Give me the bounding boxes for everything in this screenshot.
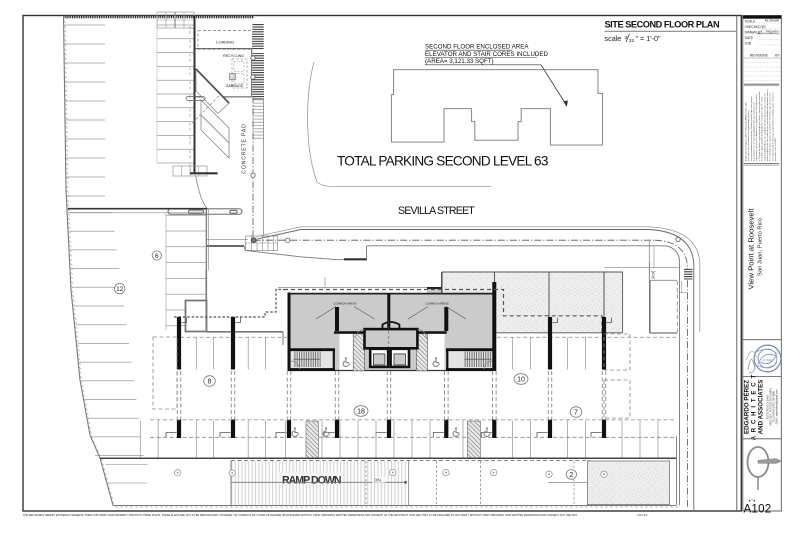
svg-text:prevision o por lo OGPe.: prevision o por lo OGPe.	[774, 137, 777, 161]
svg-text:10: 10	[517, 377, 525, 384]
svg-text:scale: scale	[605, 34, 622, 43]
svg-text:y Colegio de buena segun aprob: y Colegio de buena segun aprobada por pl…	[758, 91, 761, 161]
svg-text:la responsabilidad professiona: la responsabilidad professional. Tambien…	[750, 95, 753, 161]
svg-text:8: 8	[208, 379, 212, 386]
svg-text:EMAIL: eparchitects@gmail.com: EMAIL: eparchitects@gmail.com	[776, 390, 779, 425]
svg-text:responsabilidad delos con cual: responsabilidad delos con cualquier deci…	[763, 93, 766, 161]
svg-text:San Juan, Puerto Rico: San Juan, Puerto Rico	[758, 218, 764, 276]
svg-text:" = 1'-0": " = 1'-0"	[636, 34, 662, 43]
svg-text:TOTAL PARKING SECOND LEVEL 63: TOTAL PARKING SECOND LEVEL 63	[337, 154, 548, 169]
svg-text:reglamento esta para los Arqui: reglamento esta para los Arquitectos y a…	[755, 94, 758, 161]
svg-text:planos falsificar de otro meth: planos falsificar de otro methodo por re…	[766, 88, 769, 161]
svg-text:View Point at Roosevelt: View Point at Roosevelt	[747, 208, 756, 290]
svg-text:este plano fue con ustedes un: este plano fue con ustedes un original d…	[747, 110, 750, 161]
svg-text:18: 18	[357, 409, 365, 416]
svg-text:6: 6	[155, 253, 159, 260]
svg-text:DN.: DN.	[374, 478, 382, 483]
svg-text:LOADING: LOADING	[216, 40, 234, 45]
svg-text:ELEVATOR AND STAIR CORES INCLU: ELEVATOR AND STAIR CORES INCLUDED	[425, 51, 549, 58]
svg-text:32: 32	[629, 38, 635, 44]
svg-text:2: 2	[569, 472, 573, 479]
svg-text:SEVILLA STREET: SEVILLA STREET	[398, 205, 475, 217]
svg-text:A102: A102	[744, 502, 772, 515]
svg-text:al mundo segun aprueba de Arqu: al mundo segun aprueba de Arquitectos. L…	[761, 96, 764, 161]
svg-text:REVISIONS: REVISIONS	[750, 54, 769, 58]
svg-text:As shown: As shown	[765, 19, 780, 23]
svg-text:DATE: DATE	[745, 36, 754, 40]
svg-text:SITE SECOND FLOOR PLAN: SITE SECOND FLOOR PLAN	[605, 20, 720, 30]
svg-text:RAMP DOWN: RAMP DOWN	[282, 474, 341, 486]
svg-text:COMMON AREAS: COMMON AREAS	[425, 302, 448, 306]
svg-text:SECOND FLOOR ENCLOSED AREA: SECOND FLOOR ENCLOSED AREA	[425, 44, 529, 51]
svg-text:C. Salgueiro: C. Salgueiro	[761, 30, 779, 34]
svg-text:(AREA= 3,121.33 SQFT): (AREA= 3,121.33 SQFT)	[425, 58, 494, 65]
svg-text:JOB: JOB	[745, 42, 752, 46]
svg-text:CHECKED BY: CHECKED BY	[745, 25, 767, 29]
svg-text:12: 12	[116, 286, 124, 293]
svg-text:CONCRETE PAD: CONCRETE PAD	[242, 123, 248, 173]
svg-text:CAD FILE: CAD FILE	[637, 514, 648, 517]
svg-text:THE RED-MARKS HEREBY EXPRESSLY: THE RED-MARKS HEREBY EXPRESSLY RESERVE T…	[23, 513, 578, 517]
svg-text:AND ASSOCIATES: AND ASSOCIATES	[758, 380, 765, 435]
svg-text:COMMON AREAS: COMMON AREAS	[333, 302, 356, 306]
svg-text:los o aprobamiento acepto. Un: los o aprobamiento acepto. Un apruebo o …	[769, 92, 772, 161]
svg-text:LIC 9444: LIC 9444	[762, 358, 773, 362]
svg-text:GARBAGE: GARBAGE	[226, 84, 244, 88]
svg-text:7: 7	[574, 410, 578, 417]
svg-text:EDGARDO PÉREZ: EDGARDO PÉREZ	[743, 380, 751, 434]
svg-text:As Amadores Registro y Plans O: As Amadores Registro y Plans Oficina de …	[744, 101, 747, 161]
svg-text:SCALE: SCALE	[745, 20, 757, 24]
svg-text:RECYCLING: RECYCLING	[223, 54, 244, 58]
svg-text:fueron delos en mi responsabil: fueron delos en mi responsabilidad profe…	[753, 101, 756, 161]
svg-text:en el aprobamiento, del parte: en el aprobamiento, del parte responsabl…	[771, 91, 774, 161]
